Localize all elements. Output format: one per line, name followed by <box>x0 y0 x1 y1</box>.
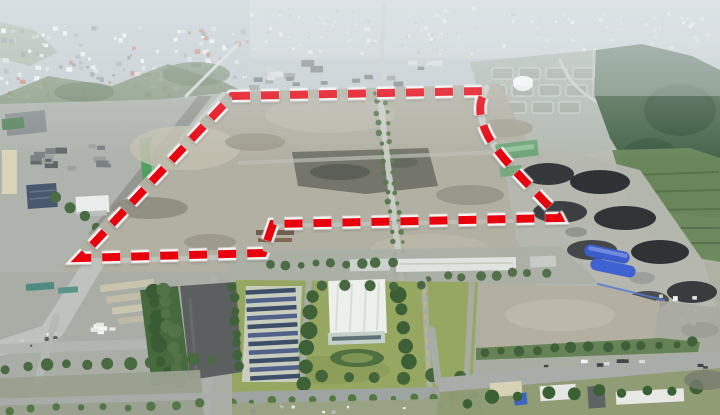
city-buildings-mid-speck <box>429 37 433 41</box>
bottom-parking-speck <box>282 406 284 409</box>
city-buildings-left-speck <box>177 30 181 33</box>
city-buildings-left-speck <box>118 38 122 43</box>
aerial-photo <box>0 0 720 415</box>
city-buildings-left-speck <box>233 76 237 79</box>
palm-trees-tree <box>329 395 336 402</box>
road-trees-e-tree <box>395 201 399 205</box>
road-trees-e-tree <box>398 229 404 235</box>
road-trees-e-tree <box>387 139 392 144</box>
stockpile-f <box>631 240 689 264</box>
city-buildings-mid-speck <box>461 19 466 23</box>
road-trees-e-tree <box>392 182 396 186</box>
city-buildings-mid-speck <box>322 22 327 26</box>
se-tree-line-tree <box>583 341 593 351</box>
city-buildings-left-speck <box>243 76 245 78</box>
road-trees-e-tree <box>386 110 390 114</box>
city-buildings-right-speck <box>603 14 605 17</box>
city-buildings-mid-speck <box>352 11 354 13</box>
south-tree-row-tree <box>388 258 398 268</box>
palm-trees-tree <box>289 396 296 403</box>
site-dark-c <box>436 185 504 205</box>
road-trees-w-tree <box>376 120 382 126</box>
city-buildings-left-speck <box>181 30 185 33</box>
sw-bottom-trees-tree <box>146 402 155 411</box>
city-buildings-left-speck <box>80 52 85 56</box>
sw-tree-row-s-tree <box>82 360 92 370</box>
road-trees-w-tree <box>390 239 395 244</box>
city-buildings-mid-speck <box>421 41 425 44</box>
city-buildings-left-speck <box>0 77 3 80</box>
city-buildings-left-speck <box>42 33 45 36</box>
city-buildings-mid-speck <box>269 27 273 31</box>
north-sheds-speck <box>387 76 396 81</box>
se-trees-tree <box>593 384 605 396</box>
lot-tree-row-e-tree <box>230 292 240 302</box>
north-sheds-speck <box>418 67 424 70</box>
city-buildings-mid-speck <box>428 33 431 36</box>
city-buildings-mid-speck <box>367 51 369 53</box>
city-buildings-mid-speck <box>264 41 267 44</box>
se-road-cars-speck <box>581 360 588 364</box>
city-buildings-right-speck <box>653 30 656 32</box>
se-tree-line-tree <box>655 342 662 349</box>
north-sheds-speck <box>393 82 403 87</box>
road-trees-e-tree <box>401 240 405 244</box>
city-buildings-left-speck <box>112 74 115 76</box>
city-buildings-mid-speck <box>415 44 417 46</box>
se-tree-line-tree <box>533 346 542 355</box>
city-buildings-right-speck <box>610 33 612 35</box>
city-buildings-mid-speck <box>336 9 339 12</box>
city-buildings-mid-speck <box>444 9 448 12</box>
city-buildings-mid-speck <box>536 27 540 30</box>
road-trees-e-tree <box>390 170 394 174</box>
city-buildings-left-speck <box>18 84 21 87</box>
city-buildings-left-speck <box>181 52 185 55</box>
city-buildings-left-speck <box>40 54 44 58</box>
parking-rows-speck <box>56 148 67 154</box>
city-buildings-mid-speck <box>401 44 404 47</box>
city-buildings-mid-speck <box>289 14 292 17</box>
city-buildings-right-speck <box>568 18 570 20</box>
white-vans-speck <box>96 323 104 327</box>
hedge-oval-core <box>341 353 373 363</box>
se-dirt-light <box>505 299 615 331</box>
sw-tree-row-s-tree <box>1 365 10 374</box>
se-trees-tree <box>513 392 523 402</box>
white-vans-speck <box>109 327 115 330</box>
settling-ponds-cell <box>559 102 580 113</box>
se-tree-line-tree <box>603 342 613 352</box>
city-buildings-mid-speck <box>431 51 435 54</box>
city-buildings-left-speck <box>79 61 83 64</box>
city-buildings-right-speck <box>613 14 616 18</box>
campus-tree-row-s-tree <box>315 370 328 383</box>
city-buildings-mid-speck <box>279 32 283 36</box>
city-buildings-mid-speck <box>319 50 323 53</box>
city-buildings-mid-speck <box>268 20 270 22</box>
factory-cream <box>2 150 17 194</box>
city-buildings-left-speck <box>28 50 31 53</box>
south-tree-row-tree <box>313 260 320 267</box>
city-buildings-left-speck <box>130 71 134 76</box>
city-buildings-left-speck <box>125 74 131 79</box>
city-buildings-left-speck <box>5 65 9 68</box>
city-buildings-right-speck <box>637 17 641 20</box>
tree-band-texture-b-tree <box>157 283 171 297</box>
city-buildings-left-speck <box>142 66 146 70</box>
trucks-east-speck <box>659 295 663 299</box>
campus-tree-row-e-tree <box>397 321 410 334</box>
aerial-photo-canvas <box>0 0 720 415</box>
building-small-south <box>530 256 556 268</box>
north-sheds-speck <box>293 82 300 86</box>
campus-tree-row-w-tree <box>297 377 311 391</box>
city-buildings-right-speck <box>706 34 711 38</box>
city-buildings-right-speck <box>570 21 574 24</box>
city-buildings-right-speck <box>621 14 624 18</box>
city-buildings-left-speck <box>234 60 239 64</box>
city-buildings-mid-speck <box>250 13 254 17</box>
campus-tree-row-w-tree <box>299 340 315 356</box>
city-buildings-left-speck <box>156 50 159 53</box>
se-road-cars-speck <box>617 359 624 363</box>
road-trees-e-tree <box>397 210 402 215</box>
city-buildings-left-speck <box>63 31 67 36</box>
city-buildings-left-speck <box>3 58 9 63</box>
north-sheds-speck <box>352 79 360 83</box>
city-buildings-right-speck <box>654 36 657 39</box>
parking-rows-speck <box>97 146 105 150</box>
city-buildings-mid-speck <box>489 29 491 31</box>
north-sheds-speck <box>301 60 314 67</box>
city-buildings-left-speck <box>1 29 6 34</box>
sw-bottom-trees-tree <box>172 401 181 410</box>
city-buildings-mid-speck <box>430 34 433 37</box>
parking-rows-speck <box>96 161 109 168</box>
city-buildings-left-speck <box>140 59 144 63</box>
city-tree-cluster-b <box>54 82 114 102</box>
south-tree-row-b-tree <box>492 271 502 281</box>
tree-band-texture-tree <box>148 322 161 335</box>
city-buildings-mid-speck <box>355 23 358 26</box>
sw-cars-speck <box>53 336 57 339</box>
city-buildings-left-speck <box>175 50 178 53</box>
city-buildings-mid-speck <box>415 24 417 27</box>
se-road-cars-speck <box>597 363 604 367</box>
city-buildings-mid-speck <box>321 36 324 39</box>
city-buildings-mid-speck <box>435 14 440 17</box>
se-road-cars-speck <box>544 365 548 367</box>
se-tree-line-tree <box>674 341 681 348</box>
sw-tree-row-s-tree <box>101 358 113 370</box>
lot-tree-row-e-tree <box>232 339 241 348</box>
city-buildings-left-speck <box>74 33 78 37</box>
bottom-parking-speck <box>403 407 406 409</box>
se-trees-tree <box>463 399 473 409</box>
city-buildings-left-speck <box>36 52 40 55</box>
trucks-east-speck <box>692 296 697 300</box>
tree-row-left-tree <box>50 192 61 203</box>
city-buildings-left-speck <box>93 69 98 73</box>
city-buildings-right-speck <box>582 48 585 51</box>
city-buildings-right-speck <box>681 17 684 19</box>
city-buildings-mid-speck <box>420 29 424 32</box>
se-tree-line-tree <box>550 343 559 352</box>
se-tree-line-tree <box>514 346 524 356</box>
city-buildings-left-speck <box>2 71 5 74</box>
campus-tree-row-n-tree <box>317 281 327 291</box>
city-buildings-mid-speck <box>389 21 393 24</box>
city-buildings-left-speck <box>232 33 234 35</box>
road-trees-e-tree <box>386 121 390 125</box>
sw-cars-speck <box>47 333 49 336</box>
city-buildings-mid-speck <box>289 49 291 51</box>
city-buildings-left-speck <box>113 80 117 83</box>
north-sheds-speck <box>364 75 373 80</box>
city-buildings-mid-speck <box>501 30 503 32</box>
gravel-pile-a <box>565 227 587 237</box>
city-buildings-left-speck <box>133 47 136 50</box>
city-buildings-left-speck <box>66 67 72 72</box>
north-sheds-speck <box>249 85 260 91</box>
city-buildings-mid-speck <box>459 8 462 11</box>
city-buildings-mid-speck <box>268 25 270 27</box>
city-buildings-left-speck <box>88 57 91 60</box>
sw-tree-row-s-tree <box>145 357 157 369</box>
city-buildings-mid-speck <box>453 11 456 13</box>
city-buildings-left-speck <box>212 27 217 31</box>
city-buildings-mid-speck <box>453 21 456 24</box>
north-sheds-speck <box>286 77 294 81</box>
sw-tree-row-s-tree <box>124 357 137 370</box>
parking-rows-speck <box>67 166 76 171</box>
city-buildings-left-speck <box>92 26 97 30</box>
building-gray-south <box>350 259 390 272</box>
white-vans-speck <box>99 326 107 330</box>
sw-bottom-trees-tree <box>52 403 60 411</box>
se-trees-tree <box>643 386 653 396</box>
bottom-parking-speck <box>322 411 325 413</box>
city-buildings-mid-speck <box>367 39 371 42</box>
city-buildings-left-speck <box>32 35 37 39</box>
city-buildings-right-speck <box>617 37 621 41</box>
se-tree-line-tree <box>636 341 645 350</box>
city-buildings-mid-speck <box>472 7 475 9</box>
trucks-east-speck <box>673 296 678 301</box>
city-buildings-mid-speck <box>537 37 540 39</box>
se-trees-tree <box>543 386 556 399</box>
south-tree-row-b-tree <box>542 269 551 278</box>
road-trees-w-tree <box>381 171 386 176</box>
tree-row-left-tree <box>65 202 76 213</box>
road-trees-e-tree <box>383 101 388 106</box>
se-tree-line-tree <box>565 342 576 353</box>
city-buildings-left-speck <box>91 66 96 70</box>
south-tree-row-tree <box>281 261 291 271</box>
sw-tree-row-s-tree <box>23 362 32 371</box>
parking-rows-speck <box>89 144 96 148</box>
city-buildings-mid-speck <box>502 44 505 48</box>
city-buildings-mid-speck <box>472 32 474 34</box>
south-tree-row-tree <box>357 258 367 268</box>
settling-ponds-cell <box>573 68 594 79</box>
tree-band-texture-tree <box>149 297 159 307</box>
se-trees-tree <box>617 389 626 398</box>
settling-ponds-cell <box>532 102 553 113</box>
north-sheds-speck <box>267 76 275 80</box>
city-buildings-left-speck <box>246 41 248 44</box>
city-buildings-mid-speck <box>353 33 357 36</box>
sw-cars-speck <box>30 345 32 347</box>
city-buildings-right-speck <box>686 18 688 20</box>
campus-tree-row-s-tree <box>397 372 410 385</box>
campus-tree-row-w-tree <box>299 360 313 374</box>
campus-tree-row-e-tree <box>401 354 417 370</box>
road-trees-e-tree <box>386 131 391 136</box>
city-buildings-mid-speck <box>365 27 370 31</box>
campus-tree-row-e-tree <box>398 339 413 354</box>
road-trees-w-tree <box>376 130 382 136</box>
lot-tree-row-e-tree <box>232 330 241 339</box>
road-trees-w-tree <box>373 92 377 96</box>
city-buildings-right-speck <box>664 20 667 23</box>
city-buildings-mid-speck <box>424 27 428 30</box>
city-buildings-right-speck <box>700 18 704 21</box>
city-buildings-left-speck <box>69 61 73 65</box>
se-tree-line-tree <box>687 336 697 346</box>
se-trees-tree <box>485 390 499 404</box>
sw-bottom-trees-tree <box>195 398 204 407</box>
road-trees-w-tree <box>380 141 384 145</box>
site-dark-b <box>225 133 285 151</box>
city-buildings-left-speck <box>174 38 178 42</box>
city-buildings-mid-speck <box>418 51 421 54</box>
city-buildings-mid-speck <box>531 20 534 23</box>
road-trees-w-tree <box>386 190 391 195</box>
city-buildings-mid-speck <box>347 39 352 43</box>
city-buildings-left-speck <box>21 52 25 57</box>
campus-tree-row-e-tree <box>395 303 407 315</box>
south-tree-row-tree <box>370 257 381 268</box>
road-trees-w-tree <box>383 180 388 185</box>
city-buildings-right-speck <box>682 21 686 24</box>
city-buildings-mid-speck <box>278 14 281 17</box>
city-buildings-mid-speck <box>516 24 519 28</box>
city-buildings-mid-speck <box>438 36 440 38</box>
city-buildings-mid-speck <box>475 27 477 29</box>
city-buildings-left-speck <box>20 29 23 33</box>
city-buildings-left-speck <box>59 65 63 68</box>
city-buildings-mid-speck <box>443 20 447 24</box>
city-buildings-mid-speck <box>468 10 471 13</box>
stockpile-d <box>594 206 656 230</box>
city-buildings-right-speck <box>607 16 610 19</box>
tree-band-texture-tree <box>151 337 167 353</box>
city-buildings-right-speck <box>570 47 573 49</box>
city-buildings-right-speck <box>578 42 582 45</box>
city-buildings-left-speck <box>240 30 246 35</box>
city-buildings-left-speck <box>6 81 9 84</box>
sw-cars-speck <box>55 332 57 335</box>
city-buildings-right-speck <box>710 19 713 22</box>
se-road-cars-speck <box>604 362 610 365</box>
city-buildings-right-speck <box>696 39 699 43</box>
tree-band-texture-tree <box>155 357 165 367</box>
sw-bottom-trees-tree <box>100 403 107 410</box>
lot-tree-row-e-tree <box>232 350 242 360</box>
city-buildings-mid-speck <box>511 13 515 16</box>
city-buildings-right-speck <box>652 16 657 19</box>
se-trees-tree <box>568 387 581 400</box>
sw-cars-speck <box>45 337 49 341</box>
city-buildings-left-speck <box>238 68 243 73</box>
city-buildings-mid-speck <box>545 39 549 42</box>
city-buildings-left-speck <box>80 67 83 70</box>
city-buildings-mid-speck <box>321 17 324 20</box>
city-buildings-mid-speck <box>346 31 348 33</box>
city-buildings-left-speck <box>97 77 100 80</box>
city-buildings-mid-speck <box>537 21 540 24</box>
city-buildings-left-speck <box>199 29 204 32</box>
city-buildings-left-speck <box>223 47 227 50</box>
city-buildings-left-speck <box>206 53 210 57</box>
city-buildings-right-speck <box>571 39 575 42</box>
city-buildings-mid-speck <box>291 48 295 51</box>
city-buildings-left-speck <box>139 26 142 28</box>
city-buildings-mid-speck <box>278 10 280 12</box>
city-buildings-mid-speck <box>435 48 438 50</box>
city-buildings-right-speck <box>668 13 671 16</box>
se-trees-tree <box>667 387 676 396</box>
road-trees-w-tree <box>380 151 384 155</box>
se-tree-line-tree <box>497 347 504 354</box>
city-buildings-mid-speck <box>267 31 271 34</box>
storage-tank-top <box>513 76 533 86</box>
sw-tree-row-s-tree <box>187 353 200 366</box>
city-buildings-mid-speck <box>254 48 257 51</box>
city-buildings-right-speck <box>562 22 565 25</box>
parking-rows-speck <box>45 159 51 162</box>
sw-bottom-trees-tree <box>125 405 132 412</box>
sw-cars-speck <box>20 339 24 342</box>
south-tree-row-tree <box>342 261 350 269</box>
city-buildings-left-speck <box>194 49 200 54</box>
white-vans-speck <box>98 331 105 334</box>
road-trees-e-tree <box>390 150 394 154</box>
tree-band-texture-b-tree <box>159 295 171 307</box>
settling-ponds-cell <box>492 68 513 79</box>
sw-tree-row-s-tree <box>62 359 71 368</box>
se-tree-line-tree <box>481 348 490 357</box>
city-buildings-mid-speck <box>408 8 411 11</box>
city-buildings-left-speck <box>79 44 83 47</box>
city-buildings-right-speck <box>620 22 624 25</box>
city-buildings-left-speck <box>1 38 7 43</box>
campus-tree-row-n-tree <box>389 282 398 291</box>
city-buildings-mid-speck <box>503 13 505 15</box>
city-buildings-left-speck <box>205 59 210 62</box>
long-building-roofline <box>400 263 512 264</box>
settling-ponds-cell <box>539 85 560 96</box>
city-buildings-left-speck <box>209 39 214 43</box>
lot-tree-row-e-tree <box>232 307 240 315</box>
city-buildings-left-speck <box>17 77 20 80</box>
city-buildings-left-speck <box>96 26 98 28</box>
city-buildings-mid-speck <box>333 20 336 22</box>
road-trees-w-tree <box>388 209 392 213</box>
se-road-cars-speck <box>639 360 645 363</box>
